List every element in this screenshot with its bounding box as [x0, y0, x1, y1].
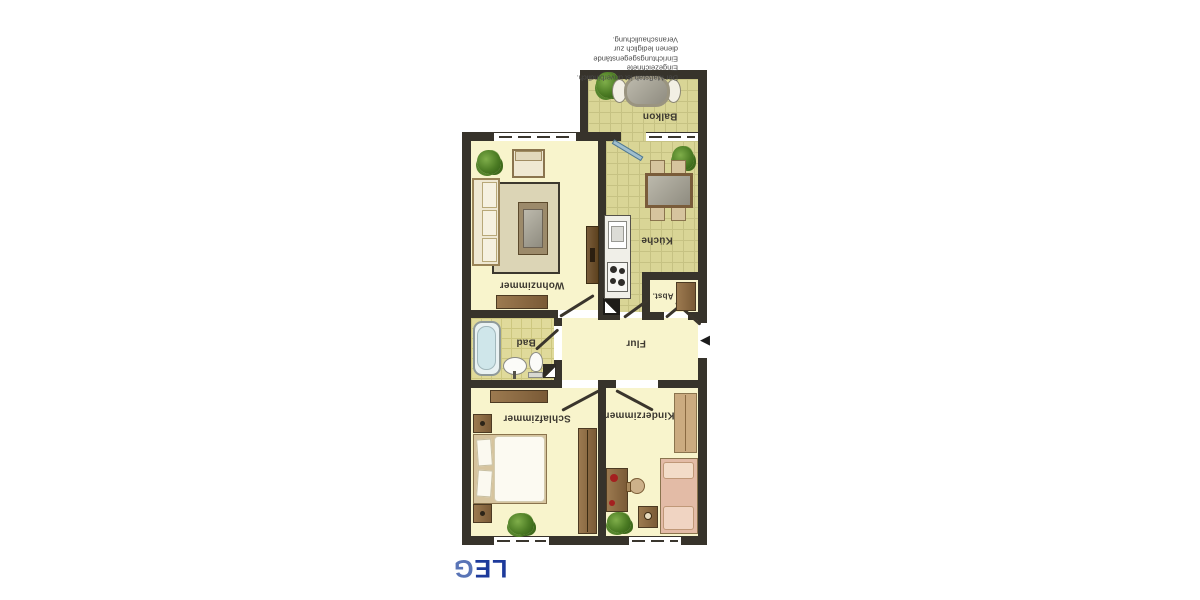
storage-cabinet [676, 282, 696, 311]
room-label-abst: Abst. [653, 292, 674, 301]
kitchen-chair-1 [650, 160, 665, 174]
leg-logo-le: LE [473, 554, 507, 582]
room-label-kinderzimmer: Kinderzimmer [605, 410, 674, 421]
disclaimer-line-1: Der Maßstab ist unverbindlich. [566, 73, 678, 83]
kitchen-chair-3 [650, 207, 665, 221]
kitchen-counter-end-symbol [603, 298, 620, 315]
stove-burner-3 [610, 278, 616, 284]
childroom-nightstand-ring [644, 512, 652, 520]
livingroom-plant [477, 150, 501, 174]
hall-bottom-wall-left [462, 380, 556, 388]
right-outer-wall-upper [698, 132, 707, 323]
single-bed-blanket [663, 506, 694, 530]
storage-bottom-wall-left [642, 312, 664, 320]
left-outer-wall [462, 132, 471, 545]
desk-item-red [610, 474, 618, 482]
leg-logo: LEG [453, 553, 507, 582]
hall-bottom-wall-mid [598, 380, 616, 388]
bathroom-corner-symbol [543, 364, 556, 378]
kitchen-sink-basin [611, 226, 624, 242]
living-bottom-wall [462, 310, 558, 318]
bathtub-basin [477, 326, 496, 370]
bedroom-window [494, 537, 549, 545]
bathroom-sink-tap [513, 371, 516, 379]
armchair-back [515, 151, 542, 161]
room-label-wohnzimmer: Wohnzimmer [500, 280, 565, 291]
storage-top-wall [642, 272, 698, 280]
toilet-bowl [529, 352, 543, 372]
disclaimer-text: Der Maßstab ist unverbindlich. Eingezeic… [566, 35, 678, 83]
bed-duvet [494, 436, 545, 502]
bedroom-dresser [490, 390, 548, 403]
sofa-cushion-1 [482, 182, 497, 208]
livingroom-window [494, 133, 576, 141]
childroom-plant [607, 512, 631, 533]
room-label-kueche: Küche [641, 235, 673, 246]
livingroom-lowboard [496, 295, 548, 309]
room-label-flur: Flur [626, 338, 646, 349]
bath-right-wall-upper [554, 318, 562, 326]
hallway-floor [562, 318, 698, 380]
kitchen-chair-4 [671, 207, 686, 221]
kitchen-balcony-window [646, 133, 698, 141]
stove-burner-4 [618, 279, 625, 286]
nightstand-left-lower-knob [480, 511, 485, 516]
room-label-bad: Bad [516, 337, 536, 348]
tv-sideboard-handle [590, 248, 595, 262]
childroom-wardrobe-divider [685, 395, 686, 451]
disclaimer-line-3: dienen lediglich zur Veranschaulichung. [566, 35, 678, 54]
sofa-cushion-2 [482, 210, 497, 236]
coffee-table-glass [523, 209, 543, 248]
bedroom-plant [508, 513, 534, 535]
sofa-cushion-3 [482, 238, 497, 262]
bed-pillow-2 [476, 470, 493, 498]
leg-logo-g: G [453, 554, 473, 582]
stove-burner-2 [619, 268, 625, 274]
nightstand-left-upper-knob [480, 421, 485, 426]
disclaimer-line-2: Eingezeichnete Einrichtungsgegenstände [566, 54, 678, 73]
room-label-balkon: Balkon [643, 111, 678, 122]
entrance-arrow-icon: ◀ [700, 333, 710, 347]
bed-pillow-1 [476, 439, 493, 467]
childroom-chair-back [626, 482, 631, 492]
desk-item-red-2 [609, 500, 615, 506]
balcony-right-wall [698, 70, 707, 141]
kitchen-chair-2 [671, 160, 686, 174]
toilet-tank [528, 372, 543, 378]
room-label-schlafzimmer: Schlafzimmer [503, 413, 570, 424]
balcony-door-opening [621, 132, 646, 141]
bedroom-wardrobe-divider [587, 430, 588, 532]
stove-burner-1 [610, 266, 617, 273]
childroom-chair [629, 478, 645, 494]
hall-bottom-wall-right [658, 380, 707, 388]
single-bed-pillow [663, 462, 694, 479]
kitchen-table [645, 173, 693, 208]
page: ◀ [0, 0, 1200, 600]
childroom-window [629, 537, 681, 545]
